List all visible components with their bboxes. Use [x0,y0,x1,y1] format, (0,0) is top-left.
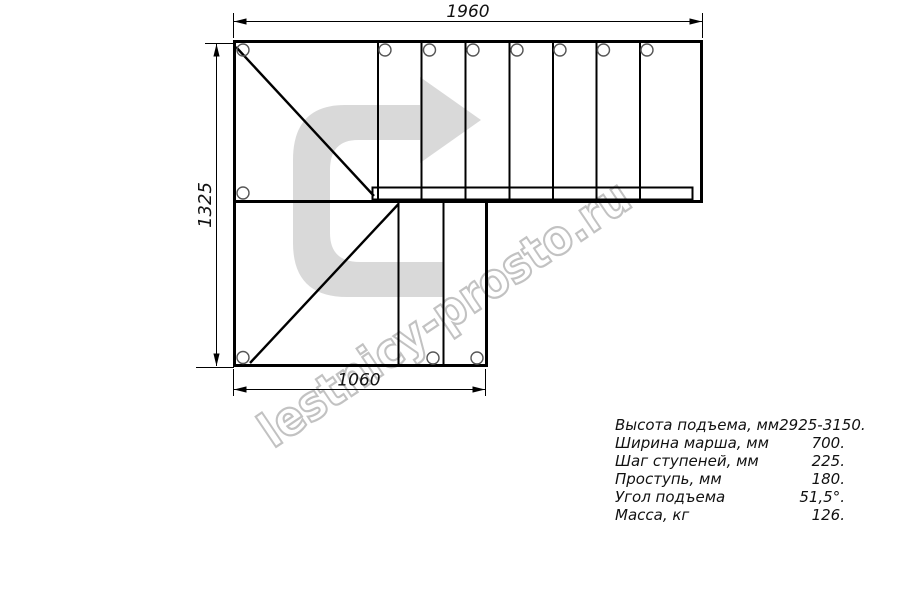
spec-label: Масса, кг [615,506,689,524]
spec-row: Высота подъема, мм 2925-3150. [615,416,845,434]
mount-hole [237,187,249,199]
mount-hole [641,44,653,56]
dim-arrow-down [213,354,219,367]
stair-drawing-canvas: lestnicy-prosto.ru [0,0,900,600]
spec-value: 126. [812,506,845,524]
mount-hole [379,44,391,56]
spec-value: 2925-3150. [779,416,866,434]
dimension-left: 1325 [195,44,234,368]
mount-hole [511,44,523,56]
dimension-bottom-value: 1060 [337,371,380,391]
spec-row: Шаг ступеней, мм 225. [615,452,845,470]
dimension-left-value: 1325 [195,182,216,228]
spec-row: Масса, кг 126. [615,506,845,524]
dim-arrow-up [213,44,219,57]
spec-row: Проступь, мм 180. [615,470,845,488]
mount-hole [471,352,483,364]
mount-hole [237,352,249,364]
spec-label: Угол подъема [615,488,725,506]
spec-value: 700. [812,434,845,452]
spec-label: Высота подъема, мм [615,416,779,434]
dimension-top-value: 1960 [446,2,489,22]
spec-row: Ширина марша, мм 700. [615,434,845,452]
spec-table: Высота подъема, мм 2925-3150. Ширина мар… [615,416,845,524]
dim-arrow-left [234,18,247,24]
spec-value: 180. [812,470,845,488]
mount-hole [467,44,479,56]
spec-value: 51,5°. [799,488,845,506]
mount-hole [424,44,436,56]
spec-label: Проступь, мм [615,470,722,488]
mount-hole [554,44,566,56]
dim-arrow-left [234,386,247,392]
spec-label: Шаг ступеней, мм [615,452,759,470]
spec-value: 225. [812,452,845,470]
spec-label: Ширина марша, мм [615,434,769,452]
mount-hole [598,44,610,56]
dim-arrow-right [690,18,703,24]
dim-arrow-right [473,386,486,392]
dimension-top: 1960 [234,2,703,38]
spec-row: Угол подъема 51,5°. [615,488,845,506]
